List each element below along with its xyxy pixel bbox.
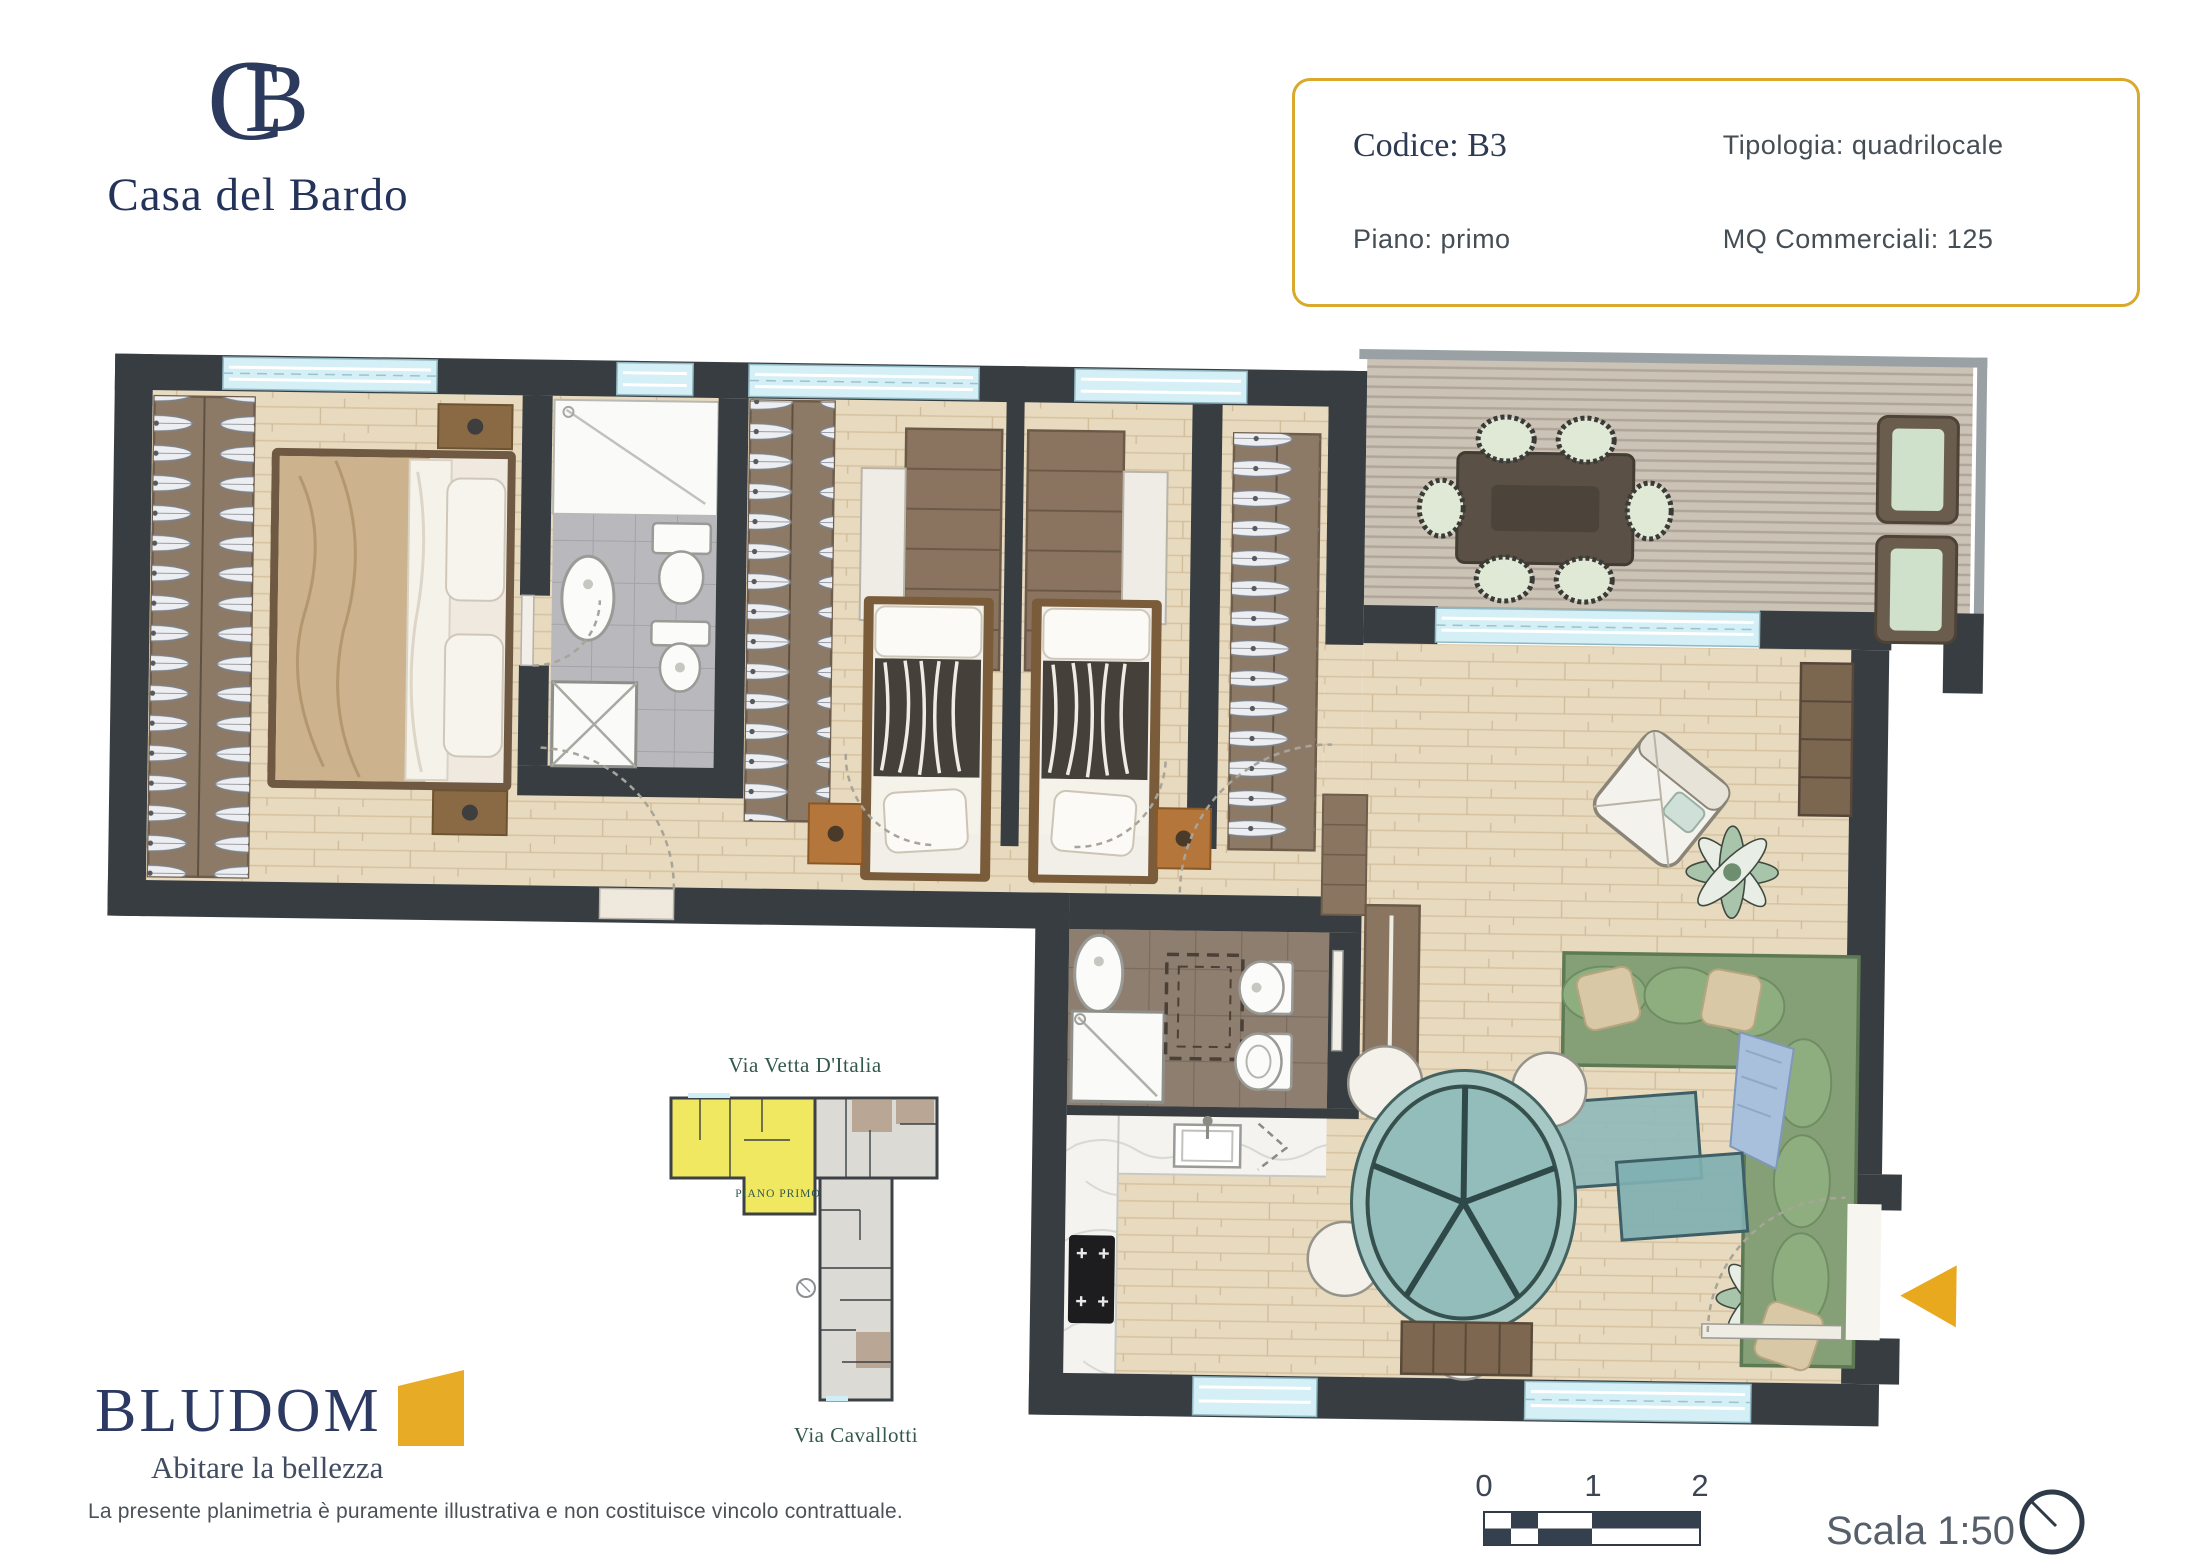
developer-name: BLUDOM — [95, 1374, 382, 1448]
unit-floor: Piano: primo — [1353, 224, 1723, 255]
key-plan: Via Vetta D'Italia PIANO PRIMO Via Caval… — [671, 1053, 937, 1447]
project-title: Casa del Bardo — [58, 168, 458, 222]
scale-tick-1: 1 — [1584, 1468, 1601, 1503]
monogram-letter-b: B — [244, 45, 309, 152]
pillow — [1575, 965, 1642, 1032]
closet-strip — [745, 400, 835, 821]
closet-strip — [1228, 433, 1320, 850]
single-bed — [1028, 598, 1162, 884]
unit-area: MQ Commerciali: 125 — [1723, 224, 2137, 255]
pillow — [444, 634, 504, 757]
brand-block: CB Casa del Bardo — [58, 34, 458, 222]
unit-code: Codice: B3 — [1353, 127, 1723, 165]
unit-info-box: Codice: B3 Tipologia: quadrilocale Piano… — [1292, 78, 2140, 307]
pillow — [446, 478, 506, 601]
brand-monogram: CB — [58, 34, 458, 166]
toilet — [653, 523, 711, 554]
unit-type: Tipologia: quadrilocale — [1723, 130, 2137, 161]
sink — [561, 556, 614, 641]
plant — [1686, 826, 1779, 919]
developer-tagline: Abitare la bellezza — [151, 1450, 515, 1486]
scale-label: Scala 1:50 — [1826, 1509, 2015, 1553]
disclaimer-text: La presente planimetria è puramente illu… — [88, 1500, 903, 1524]
entrance-door-leaf — [1702, 1324, 1842, 1340]
cooktop — [1068, 1235, 1115, 1324]
pillow — [1700, 968, 1764, 1033]
sink — [1074, 935, 1123, 1012]
bludom-mark-icon — [396, 1368, 466, 1448]
entrance-arrow-icon — [1900, 1265, 1957, 1328]
north-compass-icon — [2022, 1492, 2082, 1552]
single-bed — [860, 596, 994, 882]
scale-bar: 0 1 2 Scala 1:50 — [1475, 1468, 2082, 1553]
closet-strip — [148, 396, 255, 877]
street-label-bottom: Via Cavallotti — [794, 1423, 918, 1447]
street-label-top: Via Vetta D'Italia — [728, 1053, 882, 1077]
developer-block: BLUDOM Abitare la bellezza — [95, 1368, 515, 1486]
scale-tick-2: 2 — [1691, 1468, 1708, 1503]
scale-bar-checker — [1484, 1512, 1700, 1545]
bidet — [651, 621, 709, 646]
scale-tick-0: 0 — [1475, 1468, 1492, 1503]
master-bedroom — [267, 402, 517, 835]
apartment-plan — [101, 332, 1988, 1428]
keyplan-floor-label: PIANO PRIMO — [735, 1188, 820, 1200]
sliding-door — [1332, 951, 1343, 1051]
entrance-opening — [1846, 1204, 1882, 1340]
